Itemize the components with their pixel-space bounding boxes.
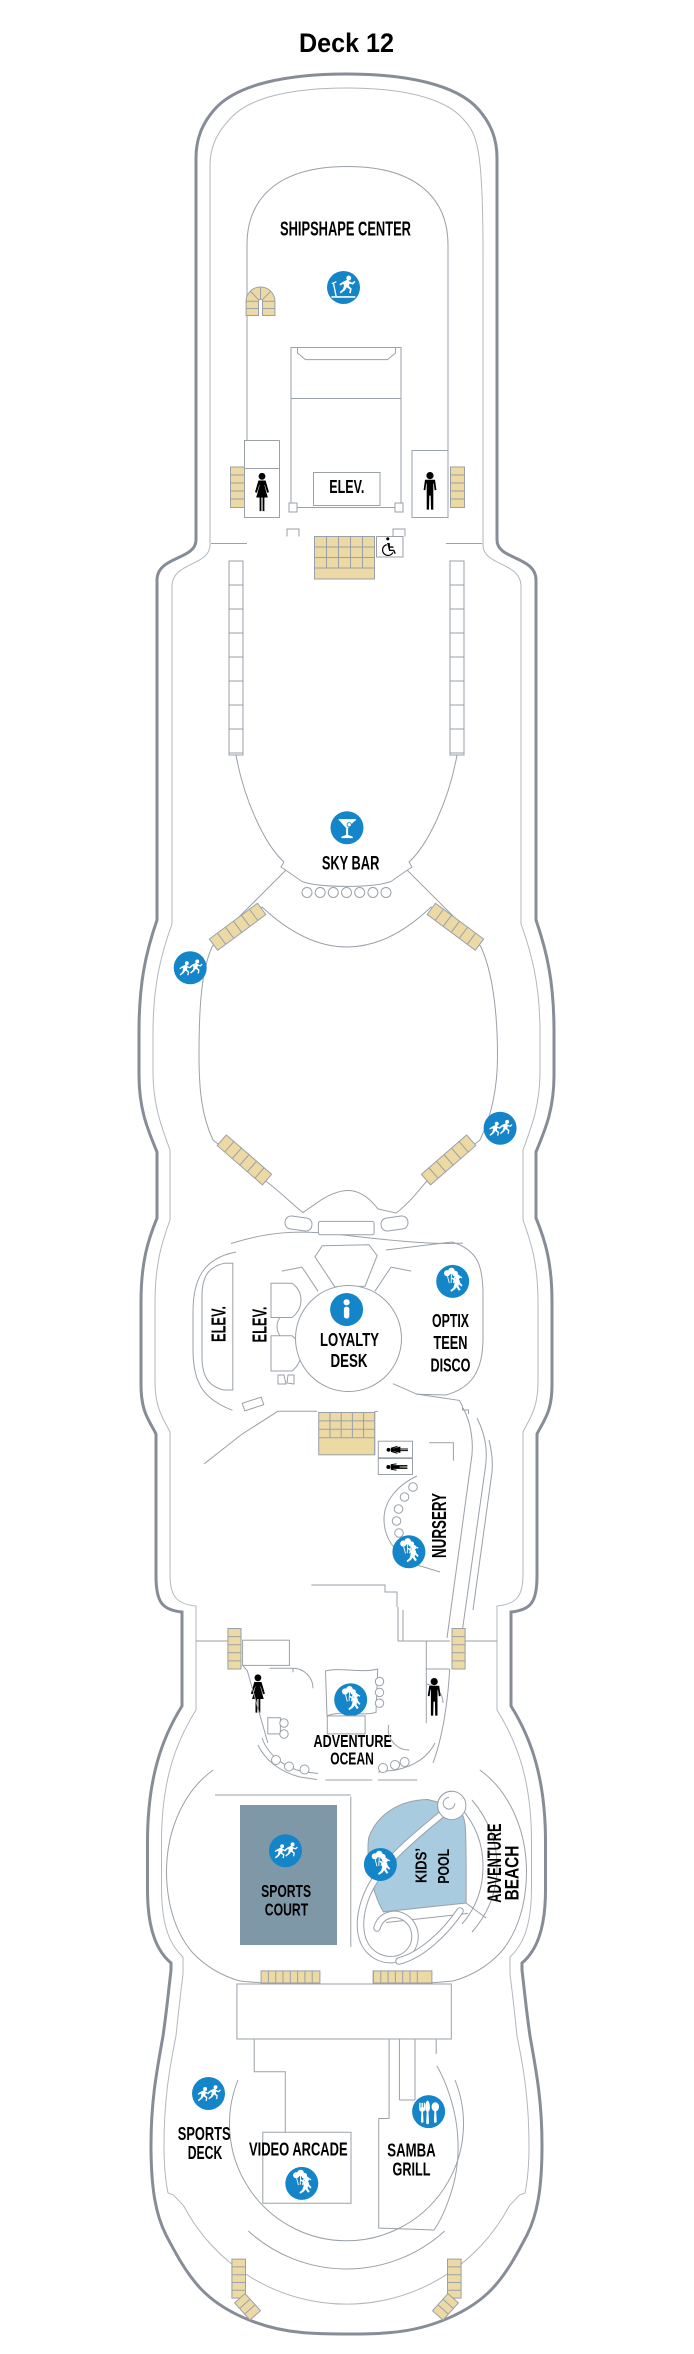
svg-text:ELEV.: ELEV. xyxy=(250,1307,272,1343)
svg-text:SPORTS: SPORTS xyxy=(261,1881,311,1901)
svg-text:SHIPSHAPE CENTER: SHIPSHAPE CENTER xyxy=(280,218,411,241)
svg-text:GRILL: GRILL xyxy=(393,2159,431,2180)
svg-text:OCEAN: OCEAN xyxy=(330,1749,374,1769)
svg-text:LOYALTY: LOYALTY xyxy=(320,1329,379,1350)
svg-text:DECK: DECK xyxy=(188,2142,223,2163)
svg-text:COURT: COURT xyxy=(265,1899,309,1919)
svg-text:TEEN: TEEN xyxy=(434,1332,468,1353)
svg-text:Deck 12: Deck 12 xyxy=(299,28,394,58)
svg-text:ELEV.: ELEV. xyxy=(329,476,364,497)
svg-text:KIDS’: KIDS’ xyxy=(414,1848,431,1883)
svg-text:POOL: POOL xyxy=(436,1849,453,1884)
svg-text:BEACH: BEACH xyxy=(502,1846,524,1901)
svg-text:OPTIX: OPTIX xyxy=(432,1310,469,1331)
svg-text:ELEV.: ELEV. xyxy=(208,1306,230,1342)
svg-text:NURSERY: NURSERY xyxy=(429,1493,451,1558)
svg-text:SKY BAR: SKY BAR xyxy=(322,853,380,875)
svg-text:VIDEO ARCADE: VIDEO ARCADE xyxy=(249,2139,348,2160)
svg-text:DESK: DESK xyxy=(331,1350,368,1371)
svg-text:SAMBA: SAMBA xyxy=(387,2140,435,2161)
svg-text:DISCO: DISCO xyxy=(431,1355,471,1376)
